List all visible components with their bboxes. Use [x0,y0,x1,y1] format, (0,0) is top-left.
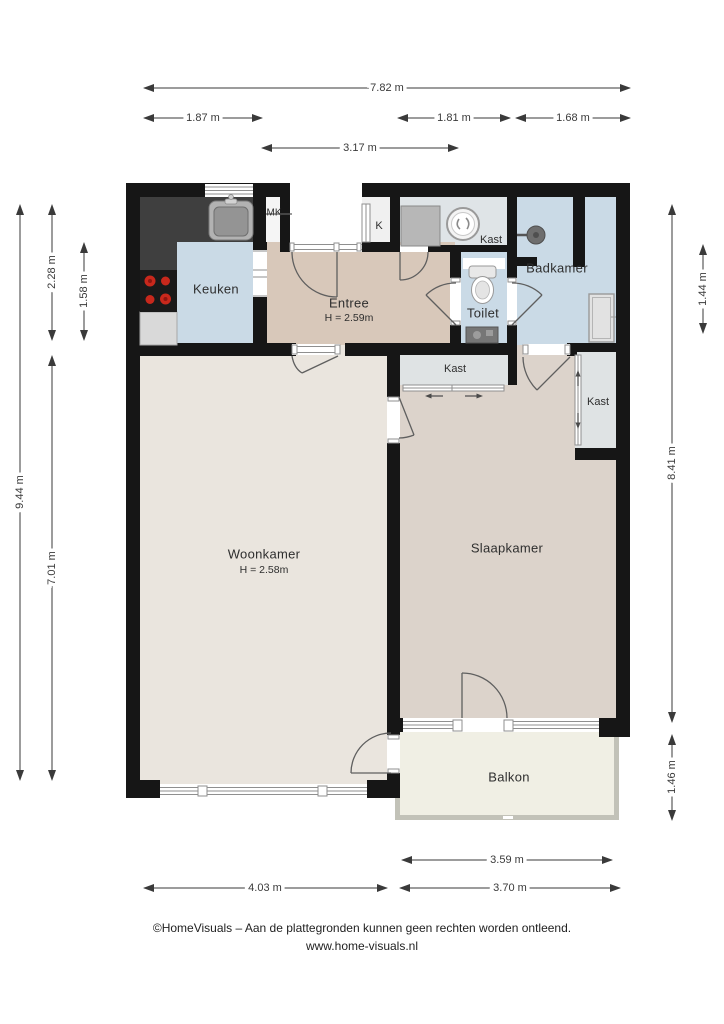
label-k: K [375,220,383,232]
entry-niche [290,183,362,242]
label-entree-height: H = 2.59m [325,312,374,324]
woonkamer-window [160,784,367,798]
stove-icon [140,270,177,312]
woonkamer-door-opening [292,344,340,355]
label-kast-right: Kast [587,396,609,408]
label-keuken: Keuken [193,282,239,297]
kitchen-sink-icon [209,195,253,240]
dim-right-lower: 1.46 m [666,760,678,794]
front-door-frame [290,242,362,252]
woon-slaap-door-opening [387,397,400,443]
label-entree: Entree [329,296,369,311]
label-mk: MK [267,208,282,219]
label-kast-mid: Kast [444,363,466,375]
dim-left-upper: 2.28 m [46,255,58,289]
label-balkon: Balkon [488,770,530,785]
dim-left-kitchen: 1.58 m [78,274,90,308]
dim-bottom-balcony: 3.59 m [490,854,524,866]
badkamer-door-opening [507,278,517,325]
dim-bottom-right: 3.70 m [493,882,527,894]
balcony-rail-mark [503,816,513,819]
dim-bottom-left: 4.03 m [248,882,282,894]
kast-mid-sliding-door [403,385,504,391]
toilet-icon [469,266,496,304]
label-woonkamer: Woonkamer [228,547,301,562]
dim-top-total: 7.82 m [370,82,404,94]
entree-floor [253,242,455,345]
dim-left-total: 9.44 m [14,475,26,509]
slaapkamer-door-opening [523,344,570,355]
floorplan-page: 7.82 m 1.87 m 1.81 m 1.68 m 3.17 m 9.44 … [0,0,724,1024]
dim-right-upper: 1.44 m [697,272,709,306]
footer-website: www.home-visuals.nl [0,939,724,953]
label-slaapkamer: Slaapkamer [471,541,544,556]
dim-right-total: 8.41 m [666,446,678,480]
slaapkamer-balcony-window [403,718,599,732]
dim-top-entree: 3.17 m [343,142,377,154]
floor-plan: 7.82 m 1.87 m 1.81 m 1.68 m 3.17 m 9.44 … [0,0,724,1024]
dim-left-lower: 7.01 m [46,551,58,585]
toilet-door-opening [450,278,461,325]
label-kast-top: Kast [480,234,502,246]
dim-top-left: 1.87 m [186,112,220,124]
label-woonkamer-height: H = 2.58m [240,564,289,576]
woonkamer-balcony-door-opening [387,735,400,773]
dim-top-mid: 1.81 m [437,112,471,124]
radiator-icon [589,294,616,342]
footer-disclaimer: ©HomeVisuals – Aan de plattegronden kunn… [0,921,724,935]
dryer-icon [401,206,440,246]
kast-right-sliding-door [575,355,581,445]
dim-top-right: 1.68 m [556,112,590,124]
balcony-wall-right [614,732,619,820]
washing-machine-icon [447,208,479,240]
keuken-pass-through [253,250,267,297]
k-sliding-door [362,204,370,242]
label-toilet: Toilet [467,306,499,321]
hand-basin-icon [466,327,498,343]
label-badkamer: Badkamer [526,261,588,276]
